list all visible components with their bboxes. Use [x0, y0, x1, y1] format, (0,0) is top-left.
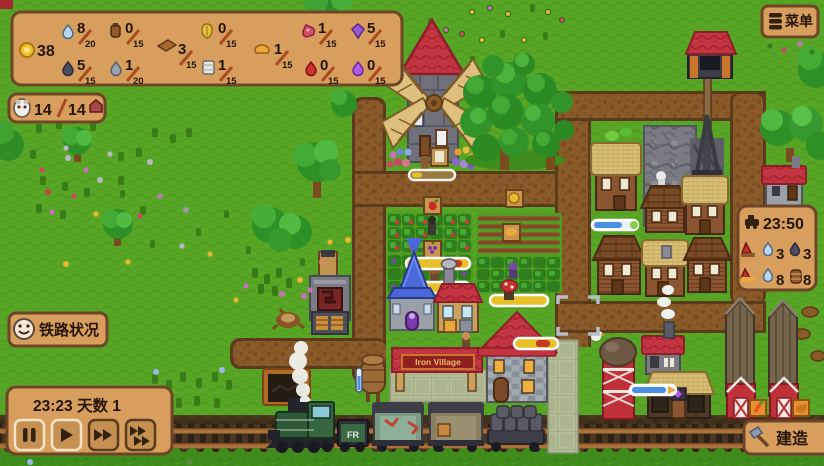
svg-text:0: 0: [320, 57, 328, 74]
svg-text:建造: 建造: [776, 429, 809, 448]
svg-text:1: 1: [274, 41, 282, 58]
svg-text:3: 3: [178, 41, 186, 58]
svg-text:14: 14: [34, 102, 52, 119]
svg-text:3: 3: [803, 246, 811, 263]
svg-text:15: 15: [226, 39, 237, 50]
svg-text:FR: FR: [347, 430, 359, 440]
svg-text:23:23 天数 1: 23:23 天数 1: [33, 396, 121, 415]
svg-text:15: 15: [375, 76, 386, 87]
svg-text:8: 8: [776, 272, 784, 289]
svg-text:0: 0: [125, 20, 133, 37]
svg-text:20: 20: [133, 76, 144, 87]
svg-text:0: 0: [218, 20, 226, 37]
svg-text:8: 8: [77, 20, 85, 37]
svg-text:Iron Village: Iron Village: [415, 357, 461, 367]
svg-text:14: 14: [68, 102, 86, 119]
svg-text:15: 15: [186, 60, 197, 71]
svg-text:1: 1: [318, 20, 326, 37]
svg-text:15: 15: [375, 39, 386, 50]
svg-text:5: 5: [77, 57, 85, 74]
svg-text:15: 15: [282, 60, 293, 71]
svg-text:15: 15: [226, 76, 237, 87]
svg-text:菜单: 菜单: [784, 13, 813, 29]
svg-text:1: 1: [218, 57, 226, 74]
svg-text:20: 20: [85, 39, 96, 50]
svg-text:1: 1: [125, 57, 133, 74]
svg-text:8: 8: [803, 272, 811, 289]
svg-text:15: 15: [85, 76, 96, 87]
svg-text:3: 3: [776, 246, 784, 263]
svg-text:38: 38: [37, 43, 55, 60]
svg-text:铁路状况: 铁路状况: [39, 321, 99, 339]
svg-text:0: 0: [367, 57, 375, 74]
svg-text:15: 15: [326, 39, 337, 50]
svg-text:5: 5: [367, 20, 375, 37]
svg-text:15: 15: [328, 76, 339, 87]
svg-text:23:50: 23:50: [763, 216, 804, 233]
svg-text:15: 15: [133, 39, 144, 50]
